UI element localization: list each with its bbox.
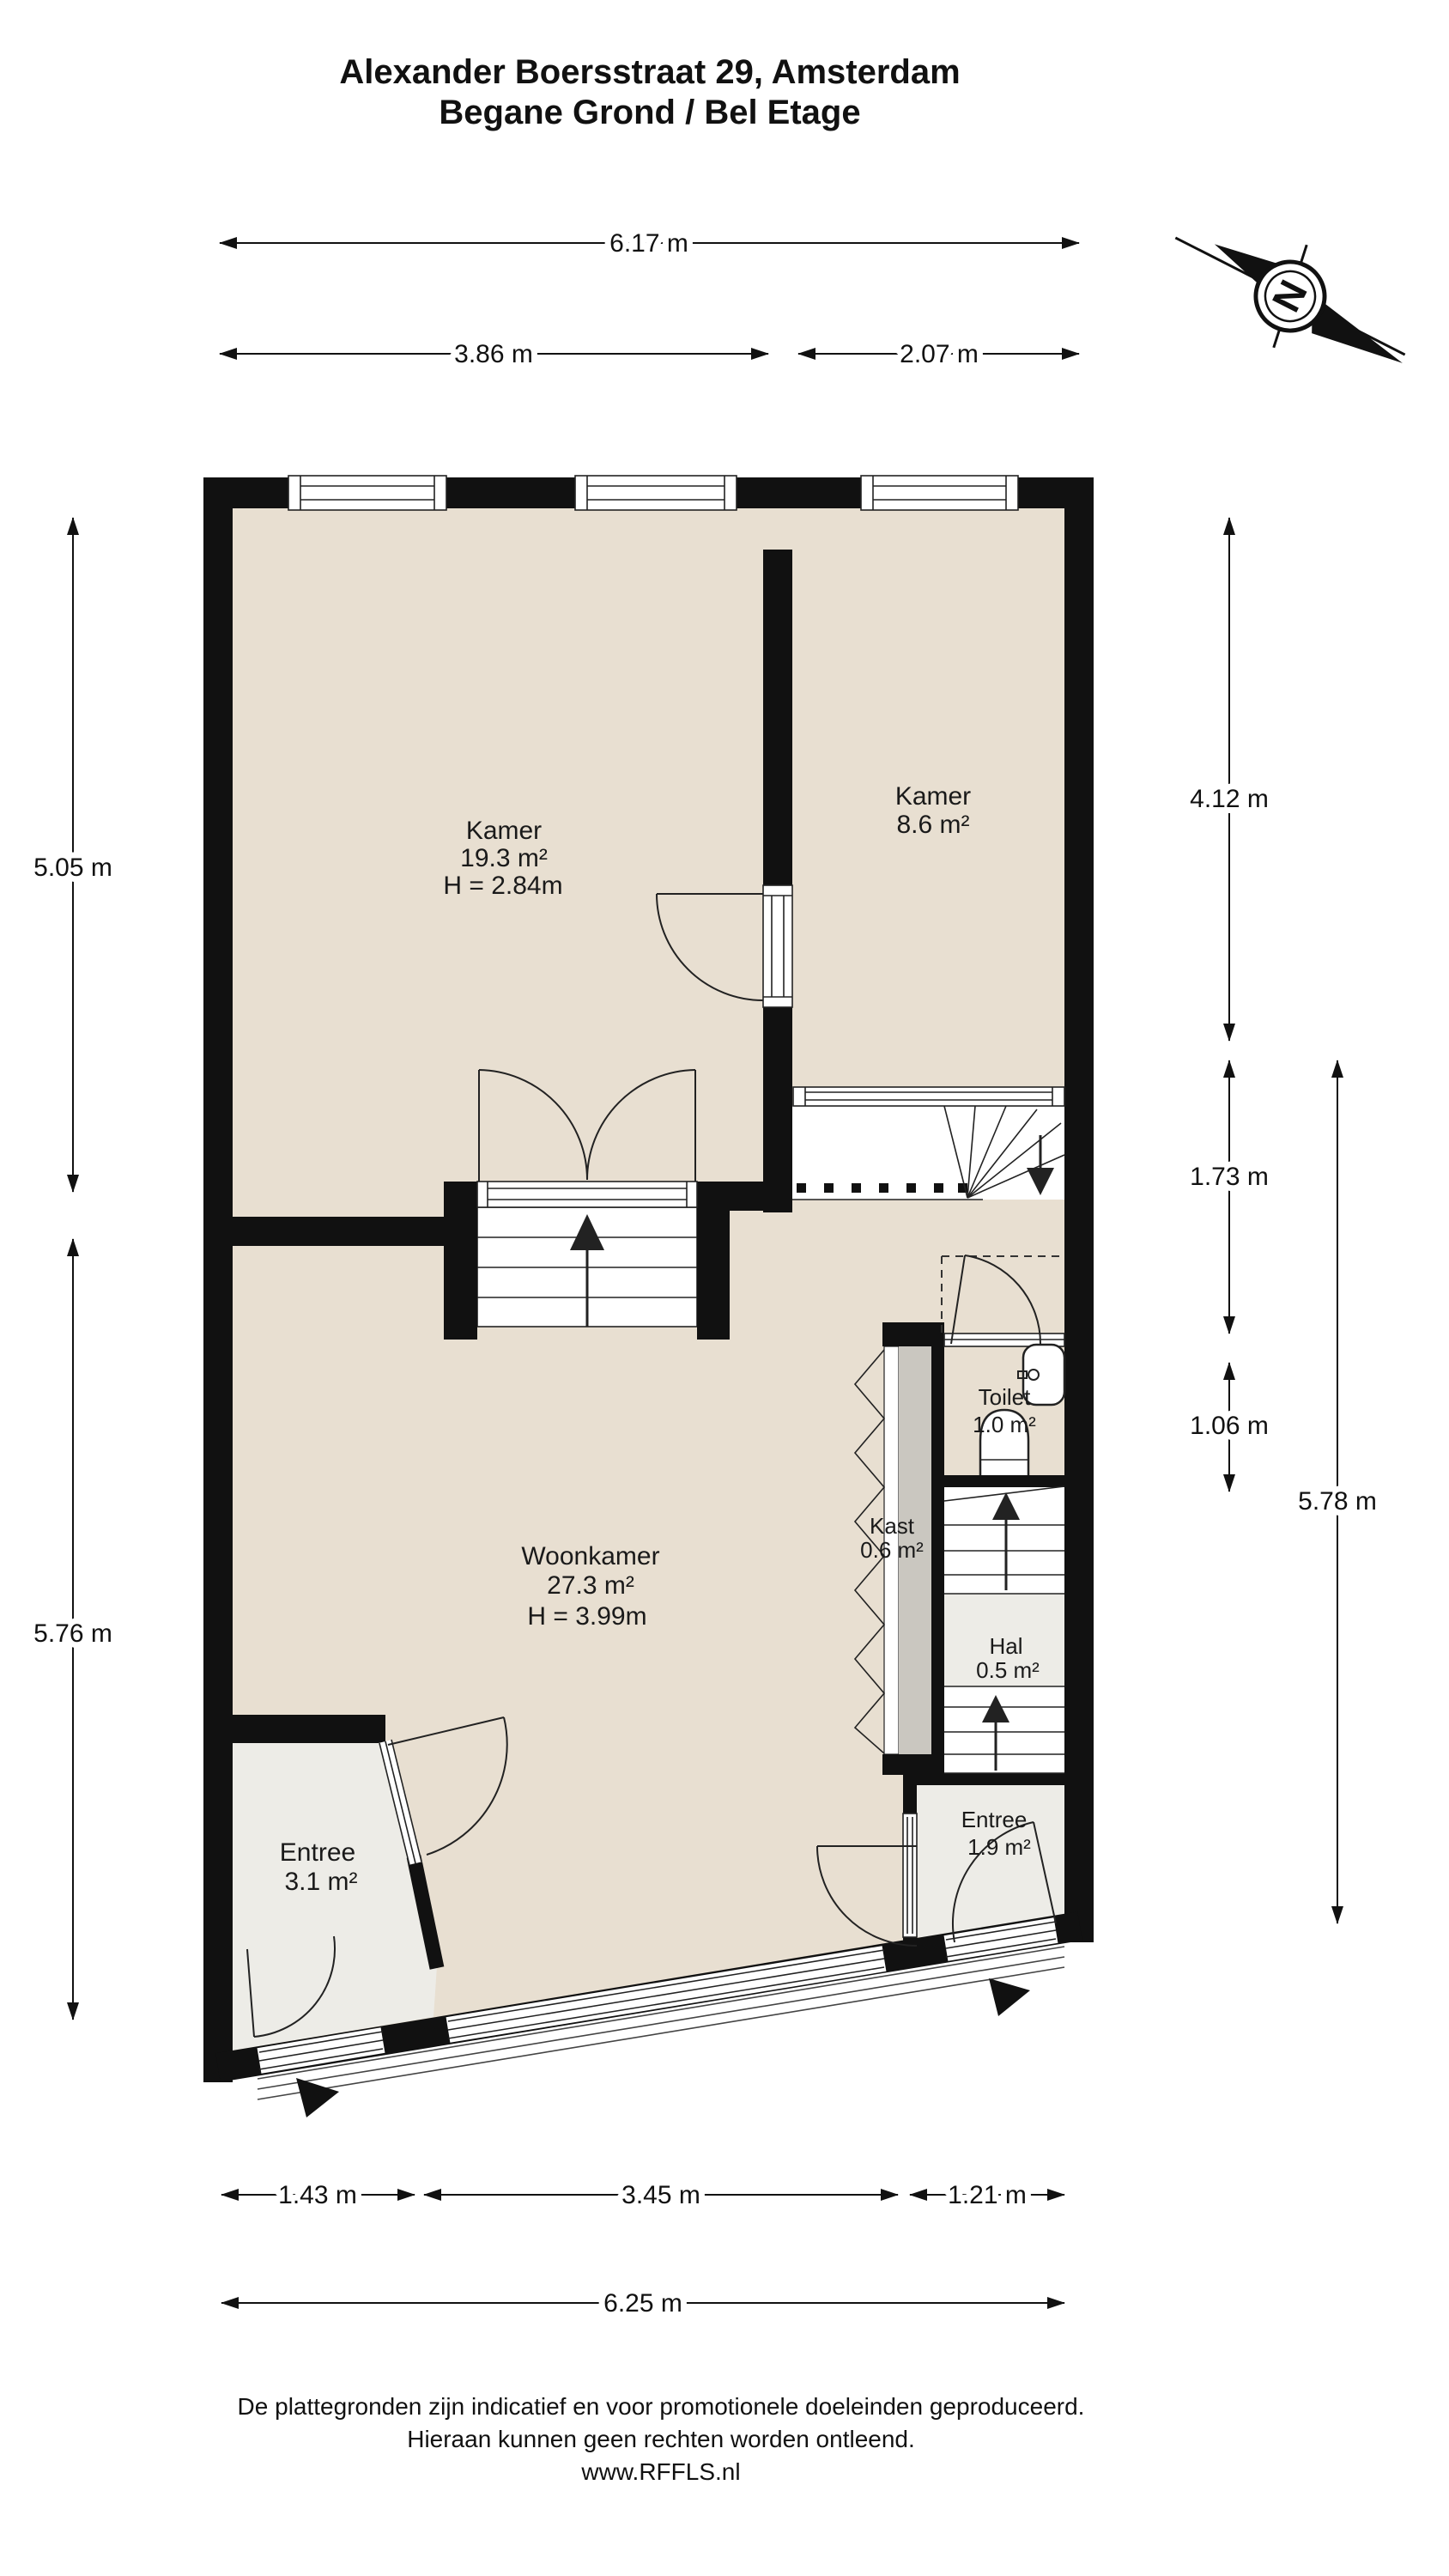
room-label-entree19-name: Entree bbox=[961, 1807, 1028, 1832]
wall-mid-right bbox=[730, 1182, 763, 1211]
title-line1: Alexander Boersstraat 29, Amsterdam bbox=[339, 53, 960, 91]
room-label-kamer2-name: Kamer bbox=[895, 782, 971, 811]
title-line2: Begane Grond / Bel Etage bbox=[439, 94, 860, 131]
wall-kast-bottom bbox=[882, 1754, 944, 1775]
room-label-hal-name: Hal bbox=[989, 1633, 1022, 1659]
footer-line1: De plattegronden zijn indicatief en voor… bbox=[238, 2393, 1085, 2420]
room-label-kamer2-area: 8.6 m² bbox=[896, 811, 969, 839]
footer-disclaimer: De plattegronden zijn indicatief en voor… bbox=[238, 2393, 1085, 2485]
dim-top-right: 2.07 m bbox=[900, 340, 979, 368]
dim-right-small: 1.06 m bbox=[1190, 1412, 1269, 1440]
room-label-woonkamer-height: H = 3.99m bbox=[527, 1602, 646, 1631]
dim-top-total: 6.17 m bbox=[609, 229, 688, 258]
entrance-arrow-left-icon bbox=[296, 2078, 339, 2117]
room-label-entree31-area: 3.1 m² bbox=[284, 1868, 357, 1896]
dim-right-upper: 4.12 m bbox=[1190, 785, 1269, 813]
floorplan-page: Alexander Boersstraat 29, Amsterdam Bega… bbox=[0, 0, 1449, 2576]
room-label-toilet-name: Toilet bbox=[979, 1384, 1031, 1410]
floorplan-canvas: Alexander Boersstraat 29, Amsterdam Bega… bbox=[0, 0, 1449, 2576]
wall-entree31-top bbox=[233, 1715, 385, 1743]
floor-fills bbox=[233, 507, 1065, 2051]
wall-mid-left bbox=[233, 1217, 444, 1246]
dim-bottom-left: 1.43 m bbox=[278, 2181, 357, 2209]
room-label-kast-name: Kast bbox=[870, 1513, 915, 1539]
window-icon bbox=[861, 476, 1018, 510]
room-label-entree31-name: Entree bbox=[280, 1838, 355, 1867]
room-label-kamer1-height: H = 2.84m bbox=[443, 872, 562, 900]
room-label-woonkamer-area: 27.3 m² bbox=[547, 1571, 634, 1600]
wall-stair2-bottom bbox=[903, 1773, 1064, 1785]
entrance-arrow-right-icon bbox=[989, 1978, 1030, 2016]
dim-left-upper: 5.05 m bbox=[33, 854, 112, 882]
dim-bottom-mid: 3.45 m bbox=[621, 2181, 700, 2209]
dim-right-mid: 1.73 m bbox=[1190, 1163, 1269, 1191]
dim-top-left: 3.86 m bbox=[454, 340, 533, 368]
room-label-entree19-area: 1.9 m² bbox=[967, 1834, 1031, 1860]
compass-rose-icon: N bbox=[1151, 191, 1430, 404]
wall-mid-stub-left bbox=[444, 1182, 477, 1340]
wall-kast-top bbox=[882, 1322, 944, 1346]
wall-divider-upper bbox=[763, 550, 792, 885]
wall-left bbox=[203, 477, 233, 2082]
window-icon bbox=[575, 476, 737, 510]
room-label-kast-area: 0.6 m² bbox=[860, 1537, 924, 1563]
wall-toilet-bottom bbox=[931, 1475, 1064, 1487]
dim-bottom-right: 1.21 m bbox=[948, 2181, 1027, 2209]
room-label-woonkamer-name: Woonkamer bbox=[521, 1542, 659, 1571]
page-title: Alexander Boersstraat 29, Amsterdam Bega… bbox=[339, 53, 960, 131]
room-label-toilet-area: 1.0 m² bbox=[973, 1412, 1036, 1437]
wall-e19-partition-top bbox=[903, 1785, 917, 1814]
wall-kast-column bbox=[931, 1322, 944, 1785]
wall-mid-stub-right bbox=[697, 1182, 730, 1340]
wall-divider-lower bbox=[763, 1007, 792, 1212]
footer-line2: Hieraan kunnen geen rechten worden ontle… bbox=[407, 2426, 915, 2452]
stair2-floor bbox=[944, 1686, 1064, 1773]
room-label-kamer1-name: Kamer bbox=[466, 817, 542, 845]
window-icon bbox=[288, 476, 446, 510]
room-label-hal-area: 0.5 m² bbox=[976, 1657, 1040, 1683]
room-label-kamer1-area: 19.3 m² bbox=[460, 844, 548, 872]
wall-e19-partition-bottom bbox=[903, 1937, 917, 1959]
wall-right bbox=[1064, 477, 1094, 1942]
dim-right-total: 5.78 m bbox=[1298, 1487, 1377, 1516]
dim-bottom-total: 6.25 m bbox=[603, 2289, 682, 2318]
footer-line3: www.RFFLS.nl bbox=[580, 2458, 740, 2485]
dim-left-lower: 5.76 m bbox=[33, 1619, 112, 1648]
windows-top bbox=[288, 476, 1018, 510]
